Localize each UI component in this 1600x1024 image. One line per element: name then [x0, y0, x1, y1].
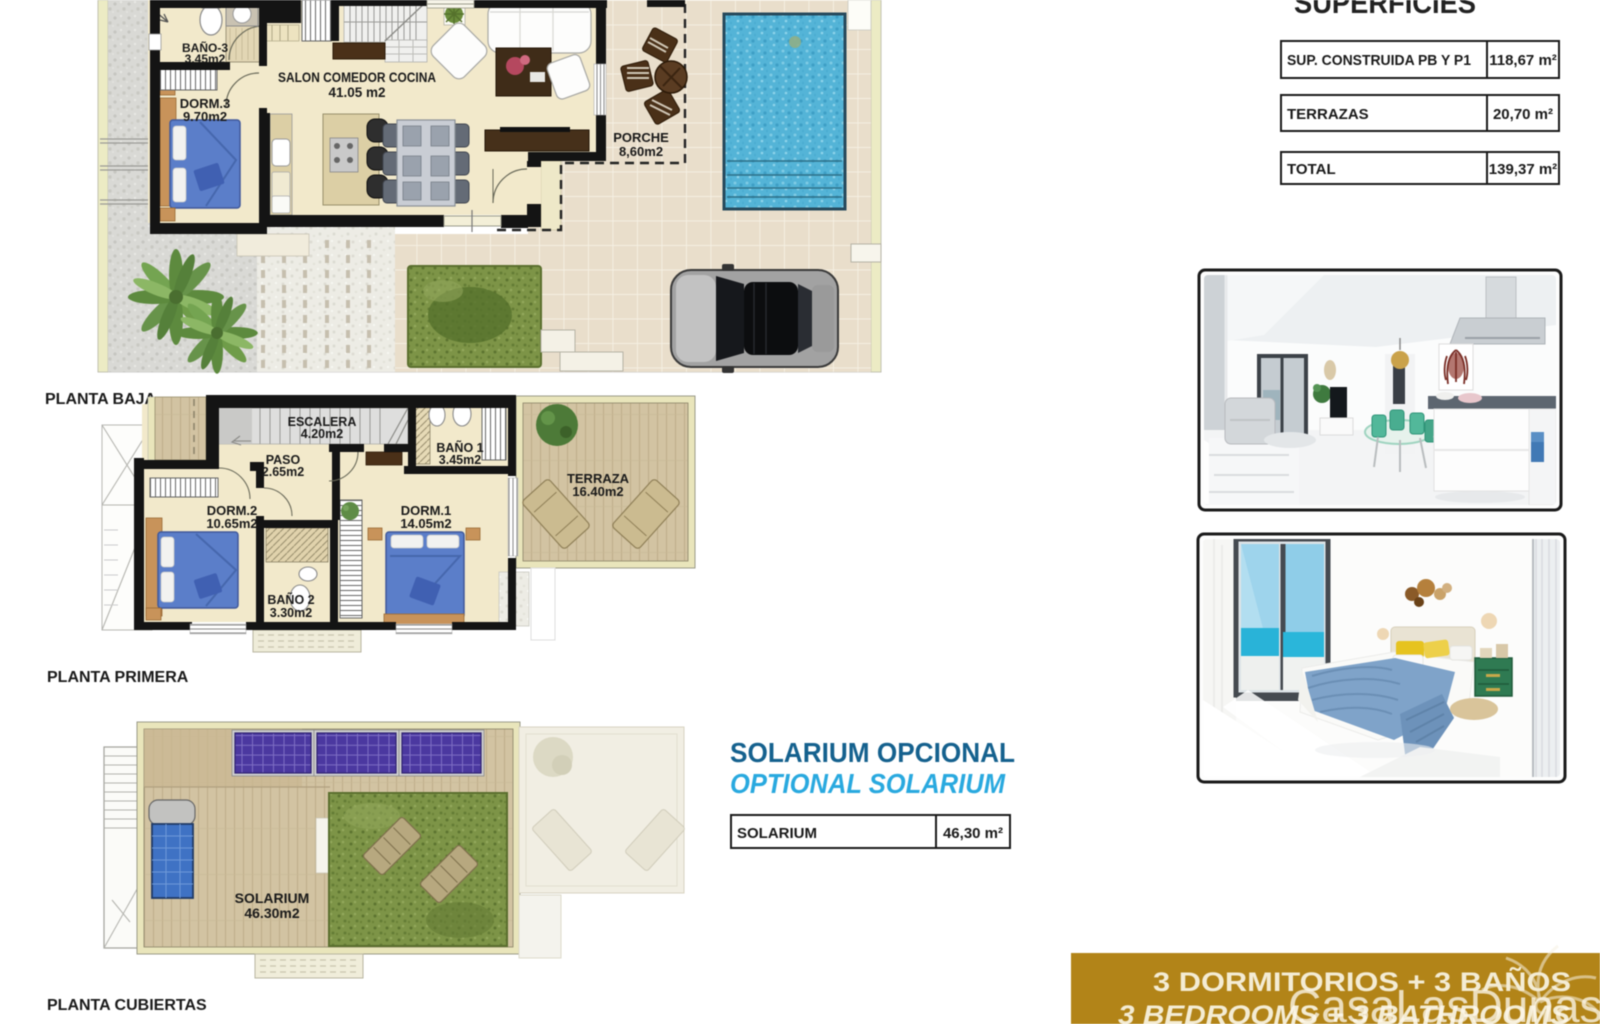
svg-text:139,37 m²: 139,37 m²	[1489, 161, 1557, 178]
svg-text:8,60m2: 8,60m2	[619, 144, 663, 159]
svg-text:2.65m2: 2.65m2	[262, 465, 304, 479]
svg-text:PLANTA PRIMERA: PLANTA PRIMERA	[47, 669, 189, 686]
svg-text:16.40m2: 16.40m2	[572, 484, 623, 499]
svg-text:SALON COMEDOR COCINA: SALON COMEDOR COCINA	[278, 70, 436, 85]
svg-text:20,70 m²: 20,70 m²	[1493, 106, 1553, 123]
svg-text:3.30m2: 3.30m2	[270, 606, 312, 620]
svg-text:118,67 m²: 118,67 m²	[1489, 52, 1557, 69]
svg-text:PORCHE: PORCHE	[613, 130, 669, 145]
svg-text:46.30m2: 46.30m2	[244, 905, 299, 921]
svg-text:SUP. CONSTRUIDA PB Y P1: SUP. CONSTRUIDA PB Y P1	[1287, 52, 1471, 69]
svg-text:3.45m2: 3.45m2	[185, 52, 226, 66]
svg-text:10.65m2: 10.65m2	[206, 516, 257, 531]
svg-text:4.20m2: 4.20m2	[301, 427, 343, 441]
svg-text:14.05m2: 14.05m2	[400, 516, 451, 531]
svg-text:TOTAL: TOTAL	[1287, 161, 1336, 178]
svg-text:SUPERFICIES: SUPERFICIES	[1294, 0, 1476, 20]
svg-text:SOLARIUM: SOLARIUM	[737, 825, 817, 842]
svg-text:9.70m2: 9.70m2	[183, 109, 227, 124]
svg-text:CasaLasDunas: CasaLasDunas	[1288, 980, 1600, 1024]
svg-text:OPTIONAL SOLARIUM: OPTIONAL SOLARIUM	[730, 768, 1006, 799]
svg-text:3.45m2: 3.45m2	[439, 453, 481, 467]
svg-text:46,30 m²: 46,30 m²	[943, 825, 1003, 842]
svg-text:PLANTA CUBIERTAS: PLANTA CUBIERTAS	[47, 997, 207, 1014]
svg-text:SOLARIUM: SOLARIUM	[235, 890, 310, 906]
svg-text:PLANTA BAJA: PLANTA BAJA	[45, 391, 157, 408]
svg-text:41.05 m2: 41.05 m2	[328, 85, 385, 100]
svg-text:BAÑO 2: BAÑO 2	[267, 592, 314, 607]
svg-text:SOLARIUM OPCIONAL: SOLARIUM OPCIONAL	[730, 737, 1015, 768]
svg-text:TERRAZAS: TERRAZAS	[1287, 106, 1369, 123]
